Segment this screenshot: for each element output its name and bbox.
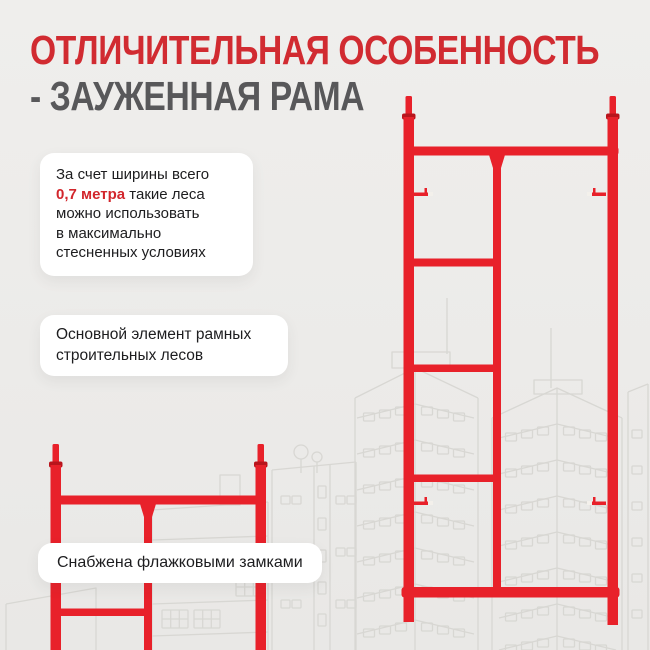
- flag-lock-pin: [587, 188, 606, 196]
- bottom-crossbar: [402, 587, 620, 598]
- card-text-line: Основной элемент рамных: [56, 324, 272, 345]
- headline-line-1: ОТЛИЧИТЕЛЬНАЯ ОСОБЕННОСТЬ: [30, 27, 599, 73]
- card-text-line: можно использовать: [56, 204, 237, 224]
- headline: ОТЛИЧИТЕЛЬНАЯ ОСОБЕННОСТЬ - ЗАУЖЕННАЯ РА…: [30, 27, 650, 119]
- top-crossbar: [404, 147, 619, 156]
- card-text-line: стесненных условиях: [56, 243, 237, 263]
- card-text-line: 0,7 метра такие леса: [56, 185, 237, 205]
- ladder-rail: [493, 150, 501, 597]
- headline-line-2: - ЗАУЖЕННАЯ РАМА: [30, 73, 599, 119]
- card-text-line: За счет ширины всего: [56, 165, 237, 185]
- rung: [407, 259, 497, 267]
- feature-card-flag-locks: Снабжена флажковыми замками: [38, 543, 322, 583]
- card-text-line: в максимально: [56, 224, 237, 244]
- building-sketch-right-edge: [628, 384, 648, 650]
- card-text-line: строительных лесов: [56, 345, 272, 366]
- flag-lock-pin: [414, 188, 433, 196]
- promo-banner: ОТЛИЧИТЕЛЬНАЯ ОСОБЕННОСТЬ - ЗАУЖЕННАЯ РА…: [0, 0, 650, 650]
- width-highlight: 0,7 метра: [56, 186, 125, 203]
- flag-lock-pin: [414, 497, 433, 505]
- rung: [55, 609, 148, 617]
- tree-sketch: [294, 445, 322, 473]
- feature-card-main-element: Основной элемент рамных строительных лес…: [40, 315, 288, 376]
- feature-card-width: За счет ширины всего 0,7 метра такие лес…: [40, 153, 253, 276]
- card-text-line: Снабжена флажковыми замками: [57, 552, 303, 573]
- right-post: [608, 117, 619, 625]
- rung: [407, 475, 497, 483]
- tower-sketch-b: [492, 328, 622, 650]
- flag-lock-pin: [587, 497, 606, 505]
- rung: [407, 365, 497, 373]
- top-crossbar: [51, 496, 267, 505]
